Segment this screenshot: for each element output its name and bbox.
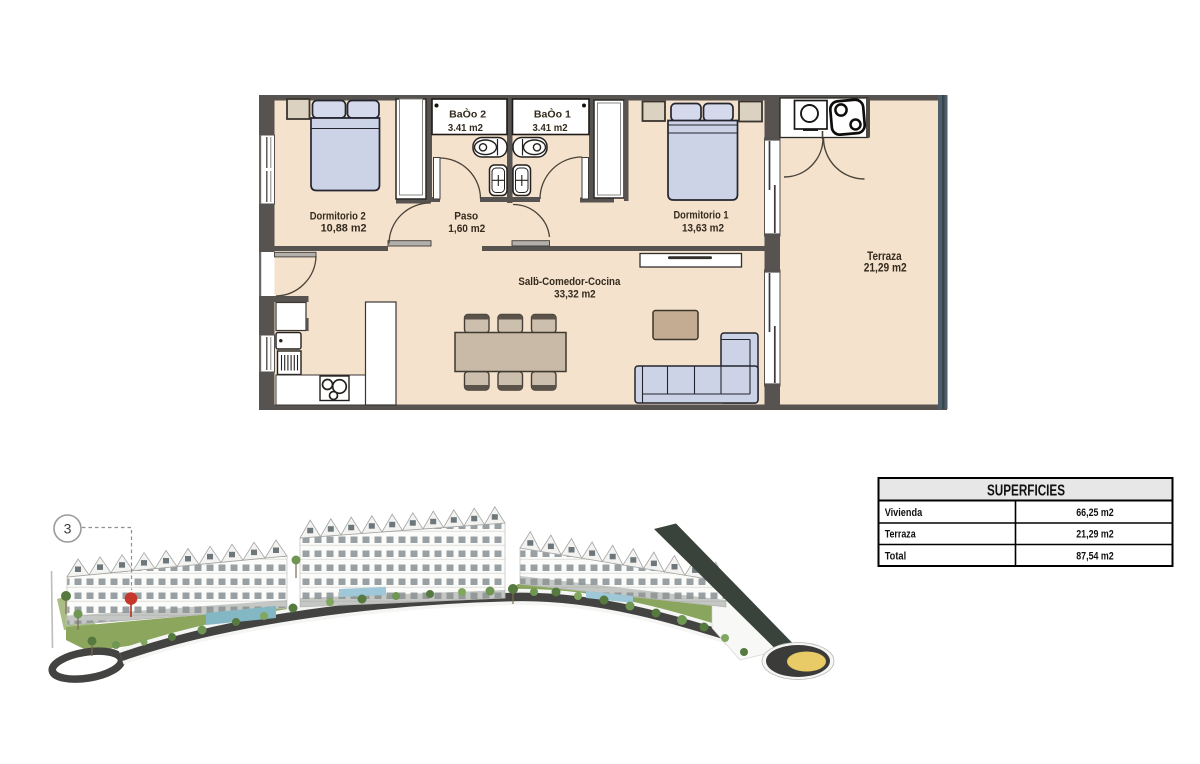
- svg-text:Terraza: Terraza: [885, 529, 917, 541]
- svg-text:SUPERFICIES: SUPERFICIES: [987, 482, 1065, 499]
- svg-text:Dormitorio 1: Dormitorio 1: [674, 209, 729, 221]
- svg-text:Salḃ-Comedor-Cocina: Salḃ-Comedor-Cocina: [518, 276, 621, 288]
- svg-text:13,63 m2: 13,63 m2: [682, 222, 724, 234]
- svg-text:87,54 m2: 87,54 m2: [1076, 551, 1114, 563]
- svg-text:66,25 m2: 66,25 m2: [1076, 507, 1114, 519]
- svg-text:3: 3: [64, 521, 72, 537]
- svg-text:33,32 m2: 33,32 m2: [554, 289, 596, 301]
- svg-text:Total: Total: [885, 551, 907, 563]
- svg-text:21,29 m2: 21,29 m2: [864, 263, 907, 275]
- svg-text:Terraza: Terraza: [867, 251, 902, 263]
- svg-text:Vivienda: Vivienda: [885, 507, 923, 519]
- svg-text:3.41 m2: 3.41 m2: [448, 122, 483, 134]
- svg-text:21,29 m2: 21,29 m2: [1076, 529, 1114, 541]
- svg-text:BaÒo 2: BaÒo 2: [449, 108, 486, 121]
- svg-text:10,88 m2: 10,88 m2: [321, 223, 367, 235]
- svg-text:1,60 m2: 1,60 m2: [448, 223, 485, 235]
- svg-text:3.41 m2: 3.41 m2: [533, 122, 568, 134]
- svg-text:Dormitorio 2: Dormitorio 2: [310, 211, 366, 223]
- svg-text:Paso: Paso: [454, 211, 478, 223]
- svg-text:BaÒo 1: BaÒo 1: [534, 108, 571, 121]
